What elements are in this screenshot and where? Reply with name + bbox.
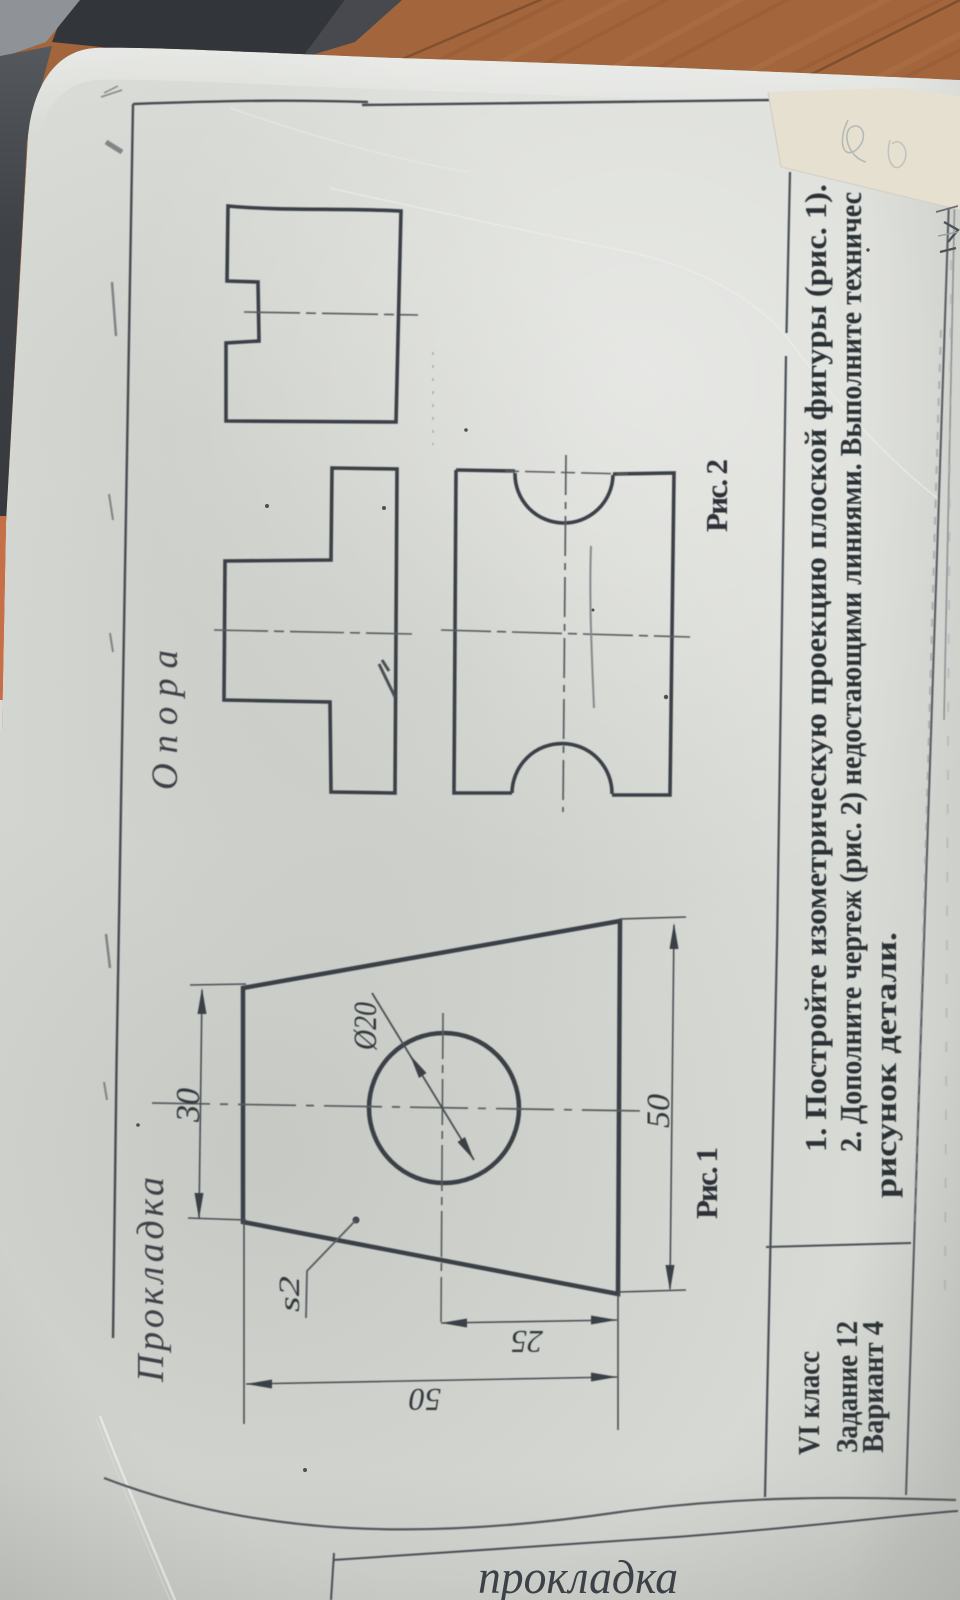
svg-text:прокладка: прокладка xyxy=(478,1551,678,1600)
